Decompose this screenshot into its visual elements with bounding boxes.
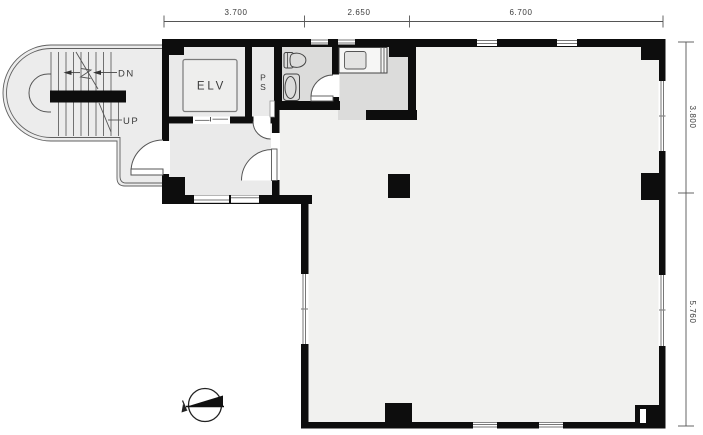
svg-text:UP: UP bbox=[123, 116, 139, 127]
svg-text:DN: DN bbox=[118, 69, 135, 80]
svg-text:3.700: 3.700 bbox=[224, 8, 247, 17]
svg-text:6.700: 6.700 bbox=[509, 8, 532, 17]
svg-text:P: P bbox=[260, 73, 266, 83]
svg-text:S: S bbox=[260, 82, 266, 92]
svg-text:3.800: 3.800 bbox=[688, 105, 697, 128]
svg-text:ELV: ELV bbox=[197, 81, 226, 93]
svg-text:5.760: 5.760 bbox=[688, 300, 697, 323]
svg-text:2.650: 2.650 bbox=[347, 8, 370, 17]
